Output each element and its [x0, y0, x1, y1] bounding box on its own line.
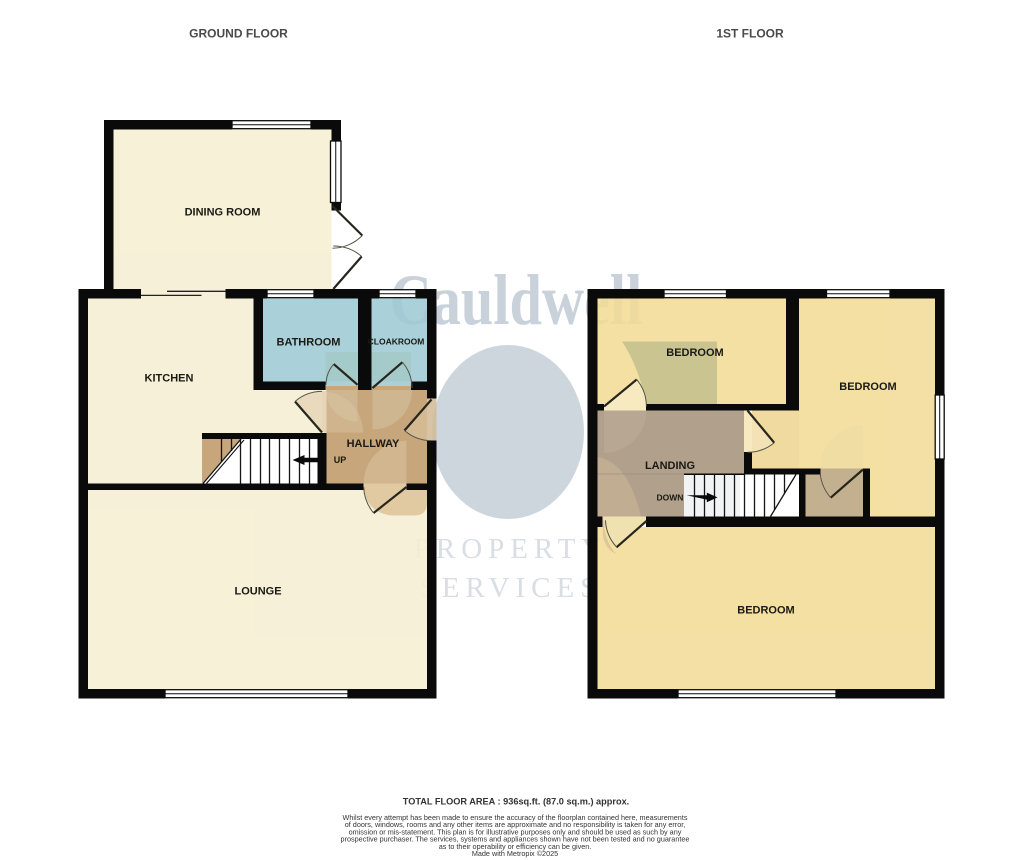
svg-text:UP: UP [334, 455, 347, 465]
svg-text:BEDROOM: BEDROOM [666, 347, 723, 359]
svg-text:CLOAKROOM: CLOAKROOM [368, 337, 425, 347]
svg-text:BATHROOM: BATHROOM [277, 337, 341, 349]
svg-text:1ST FLOOR: 1ST FLOOR [716, 27, 784, 41]
svg-text:DOWN: DOWN [657, 493, 684, 503]
svg-text:LANDING: LANDING [645, 460, 695, 472]
svg-text:DINING ROOM: DINING ROOM [185, 207, 261, 219]
svg-text:BEDROOM: BEDROOM [737, 605, 794, 617]
svg-text:Made with Metropix ©2025: Made with Metropix ©2025 [472, 849, 558, 858]
svg-text:TOTAL FLOOR AREA : 936sq.ft. (: TOTAL FLOOR AREA : 936sq.ft. (87.0 sq.m.… [403, 797, 630, 807]
svg-text:GROUND FLOOR: GROUND FLOOR [189, 27, 288, 41]
svg-text:BEDROOM: BEDROOM [839, 381, 896, 393]
svg-text:LOUNGE: LOUNGE [234, 586, 281, 598]
svg-text:SERVICES: SERVICES [420, 572, 603, 604]
svg-text:HALLWAY: HALLWAY [347, 438, 400, 450]
svg-text:PROPERTY: PROPERTY [414, 533, 609, 565]
svg-text:KITCHEN: KITCHEN [145, 373, 194, 385]
